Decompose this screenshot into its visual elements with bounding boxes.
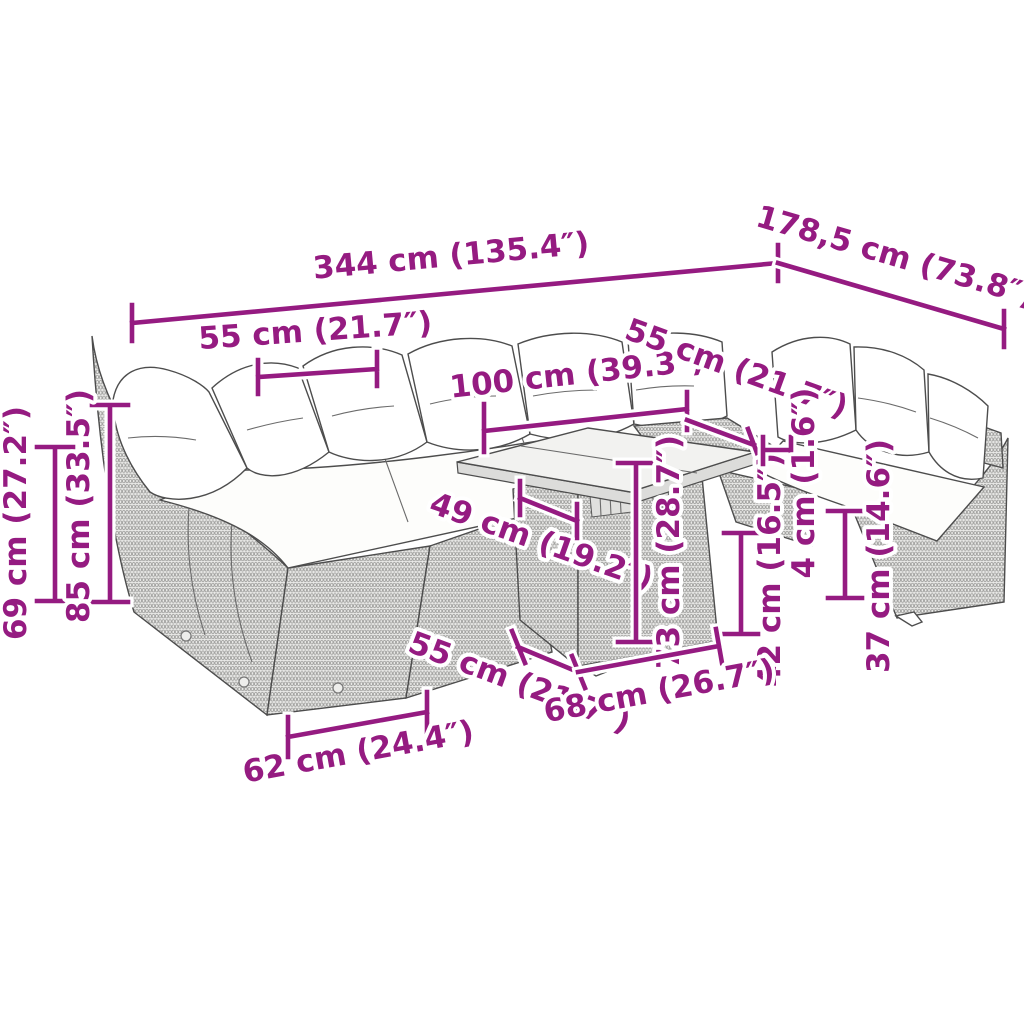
dim-table-height-label: 73 cm (28.7″) <box>651 435 687 669</box>
dimension-diagram: 344 cm (135.4″) 178,5 cm (73.8″) 55 cm (… <box>0 0 1024 1024</box>
dim-right-section-depth: 178,5 cm (73.8″) <box>752 199 1024 347</box>
screw-hole <box>333 683 343 693</box>
diagram-canvas: 344 cm (135.4″) 178,5 cm (73.8″) 55 cm (… <box>0 0 1024 1024</box>
dim-total-width-label: 344 cm (135.4″) <box>311 225 590 286</box>
dim-total-height-label: 85 cm (33.5″) <box>61 389 97 623</box>
back-cushion <box>928 374 988 479</box>
front-module-face <box>267 546 430 715</box>
dim-base-height-label: 37 cm (14.6″) <box>861 439 897 673</box>
screw-hole <box>239 677 249 687</box>
dim-back-height-label: 69 cm (27.2″) <box>0 406 34 640</box>
dim-tabletop-thickness-label: 4 cm (1.6″) <box>786 388 822 579</box>
screw-hole <box>181 631 191 641</box>
